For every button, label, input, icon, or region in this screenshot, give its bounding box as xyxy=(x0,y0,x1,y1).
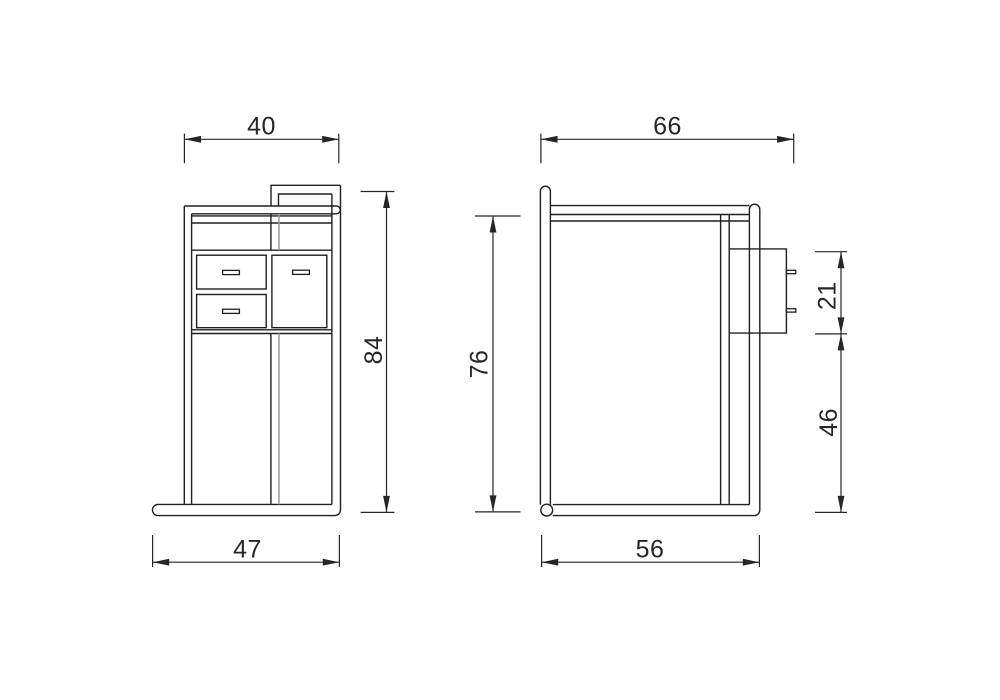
dimension-front-base-width: 47 xyxy=(153,535,340,567)
dimension-clearance-height: 46 xyxy=(815,334,847,513)
drawer-handle-side-tab-bottom xyxy=(786,309,795,312)
drawer-bottom-handle xyxy=(223,309,240,313)
arrowhead-right xyxy=(777,136,794,143)
drawing-sheet: 40 66 84 76 21 46 xyxy=(0,0,1000,700)
drawer-top-handle xyxy=(223,270,240,274)
dimension-side-base-depth: 56 xyxy=(542,535,760,567)
technical-drawing-canvas: 40 66 84 76 21 46 xyxy=(0,0,1000,700)
arrowhead-down xyxy=(838,496,845,513)
dim-label-66: 66 xyxy=(653,113,682,141)
arrowhead-left xyxy=(541,136,558,143)
dimension-side-top-depth: 66 xyxy=(541,113,794,164)
door-panel xyxy=(272,255,327,328)
dim-label-76: 76 xyxy=(466,350,494,379)
arrowhead-left xyxy=(184,136,201,143)
arrowhead-down xyxy=(383,496,390,513)
drawer-block-side xyxy=(729,249,786,333)
side-view xyxy=(540,186,795,516)
dimension-front-overall-height: 84 xyxy=(360,192,395,513)
arrowhead-up xyxy=(383,192,390,209)
arrowhead-down xyxy=(490,495,497,512)
arrowhead-right xyxy=(323,559,340,566)
back-panel-outline xyxy=(271,185,341,206)
dimension-front-top-width: 40 xyxy=(184,113,338,164)
arrowhead-left xyxy=(542,559,559,566)
dim-label-46: 46 xyxy=(815,408,843,437)
front-view xyxy=(152,185,340,515)
door-handle xyxy=(293,270,310,274)
dim-label-40: 40 xyxy=(247,113,276,141)
dim-label-56: 56 xyxy=(636,536,665,564)
side-inner-upright xyxy=(721,215,730,505)
arrowhead-left xyxy=(153,559,170,566)
arrowhead-up xyxy=(838,334,845,351)
arrowhead-down xyxy=(838,317,845,334)
dimension-drawer-block-height: 21 xyxy=(813,252,847,334)
top-rail-tube xyxy=(184,206,340,214)
arrowhead-right xyxy=(322,136,339,143)
frame-right-outer-and-base-runner xyxy=(152,185,340,515)
dim-label-84: 84 xyxy=(360,336,388,365)
arrowhead-up xyxy=(838,252,845,269)
back-panel-inner-edge xyxy=(279,194,332,206)
dimension-side-height: 76 xyxy=(466,216,521,512)
dim-label-47: 47 xyxy=(233,536,262,564)
drawer-handle-side-tab-top xyxy=(786,270,795,273)
side-front-post xyxy=(749,204,759,515)
base-tube-end-cap xyxy=(541,504,553,516)
arrowhead-right xyxy=(743,559,760,566)
arrowhead-up xyxy=(490,216,497,233)
dim-label-21: 21 xyxy=(813,281,841,310)
side-back-post xyxy=(540,186,550,505)
